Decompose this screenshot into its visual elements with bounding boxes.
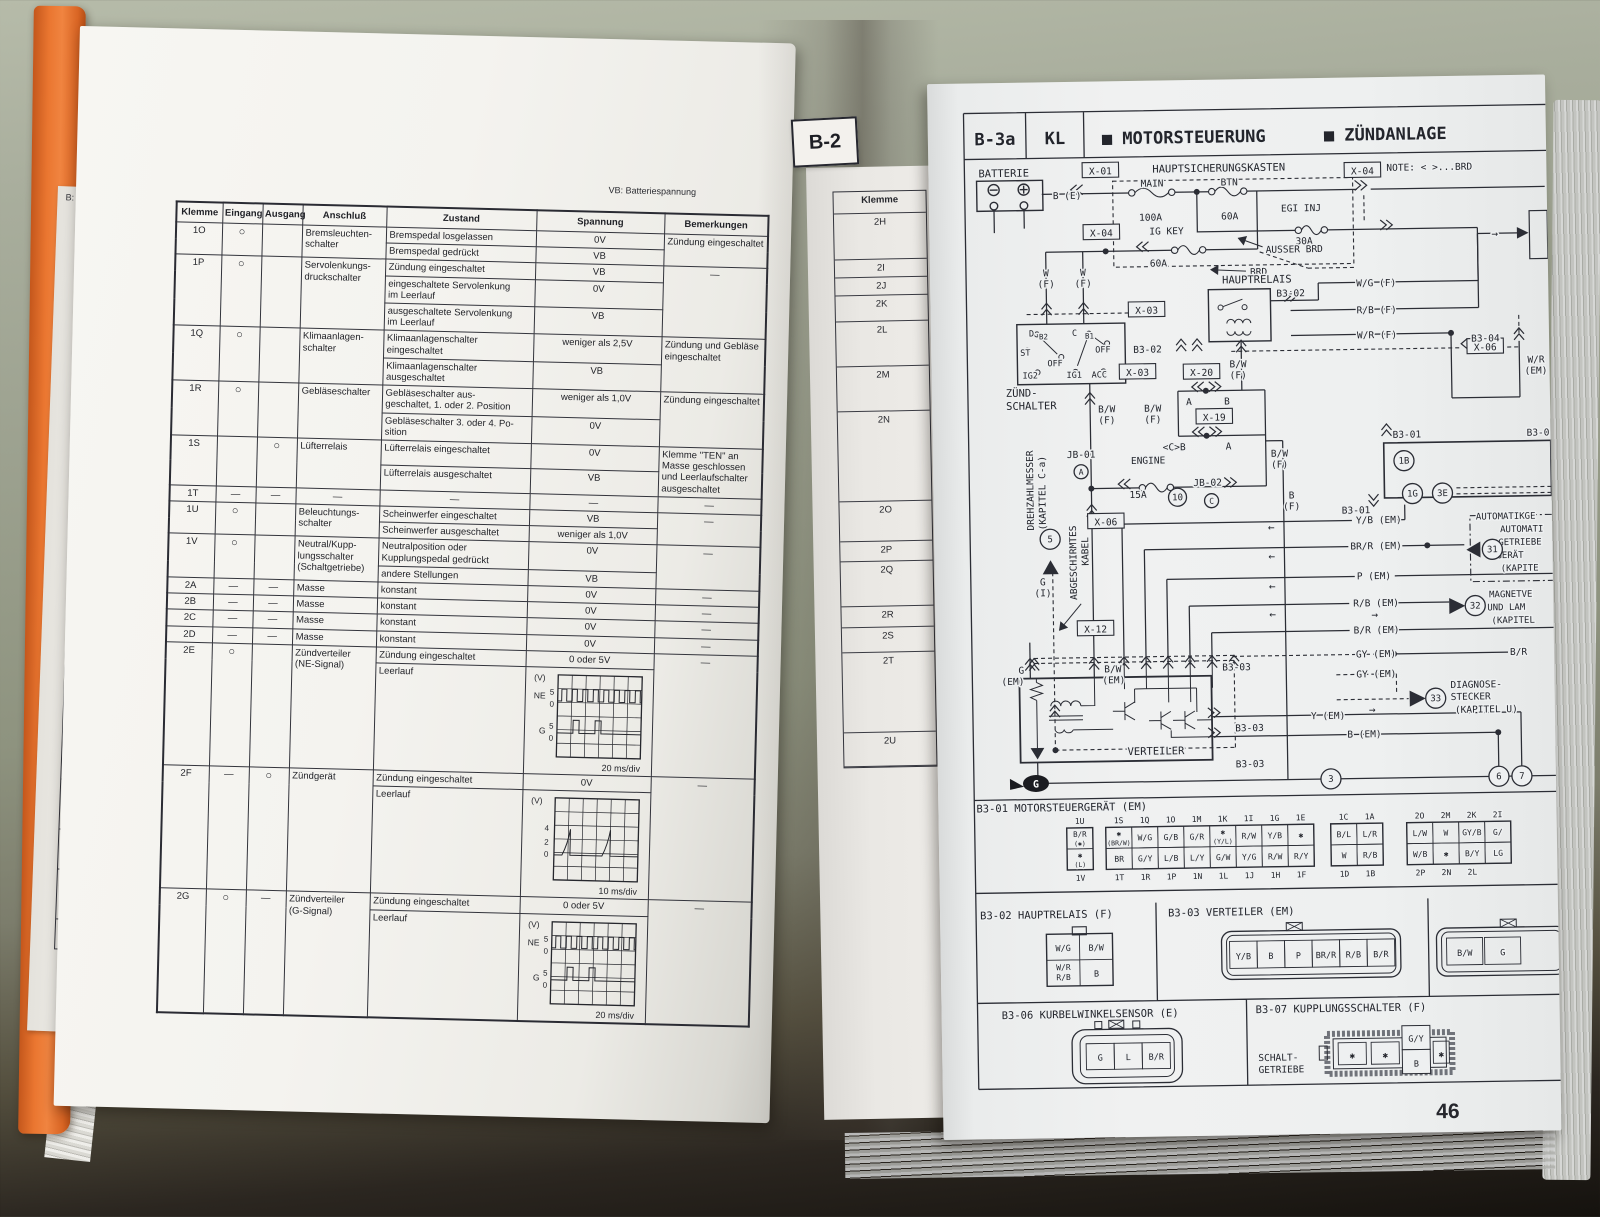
table-cell: VB [530,469,659,497]
table-cell: — [648,777,755,903]
battery-voltage-note: VB: Batteriespannung [534,183,696,197]
graph-label: 20 ms/div [601,763,640,774]
table-cell: Beleuchtungs- schalter [295,504,380,538]
table-cell: ○ [209,643,252,767]
section-tab-b2: B-2 [791,116,859,167]
table-cell: Leerlauf [370,786,523,897]
table-cell: Zündung eingeschaltet [659,392,764,449]
table-cell: (V)42010 ms/div [520,790,651,900]
table-cell: Klimaanlagen- schalter [298,328,383,385]
table-cell: Gebläseschalter aus- geschaltet, 1. oder… [382,385,533,416]
graph-label: 0 [549,700,554,709]
table-cell [255,503,296,536]
right-paper [927,74,1562,1140]
page-number: 46 [1436,1100,1460,1124]
table-cell: Zündverteiler (NE-Signal) [289,645,376,770]
table-cell: Klemme "TEN" an Masse geschlossen und Le… [658,447,763,499]
table-cell: ○ [246,767,289,891]
table-cell: 1S [170,435,217,486]
column-header: Anschluß [302,204,386,227]
table-cell: 0V [530,444,659,472]
table-cell: Bremsleuchten- schalter [301,225,386,259]
table-cell: 0V [534,279,663,310]
graph-label: 0 [542,980,547,989]
table-cell: Lüfterrelais [296,438,381,490]
graph-label: 5 [548,722,553,731]
graph-label: 5 [542,968,547,977]
table-cell: Lüfterrelais eingeschaltet [380,440,531,469]
table-cell: ○ [220,255,262,327]
graph-label: 4 [544,824,549,833]
table-cell: 1O [175,222,222,256]
table-cell: — [206,766,249,890]
graph-label: (V) [534,672,546,682]
table-cell: Leerlauf [373,663,526,774]
table-cell: — [253,595,293,612]
table-cell: 2A [167,577,213,594]
table-cell: 1R [171,380,218,436]
table-cell: 2C [166,609,212,626]
photo-scene: B: Batteriespannung Bemerkungenersorgung… [0,0,1600,1217]
table-cell [254,535,295,580]
table-cell [258,327,299,383]
table-cell: — [243,890,286,1015]
table-cell: 1T [169,485,215,502]
table-cell: — [656,513,761,548]
table-cell: ausgeschaltete Servolenkung im Leerlauf [384,303,535,334]
table-cell: — [651,654,758,780]
table-cell: — [212,627,252,644]
table-cell: — [213,578,253,595]
table-cell: Gebläseschalter [297,383,382,440]
table-cell: — [255,487,295,504]
table-cell: 1P [174,254,222,326]
table-cell: VB [534,307,663,338]
table-cell: — [212,610,252,627]
table-cell: 2B [167,593,213,610]
column-header: Klemme [176,201,222,223]
table-cell: — [662,266,768,340]
graph-label: NE [533,690,545,700]
terminal-spec-table: KlemmeEingangAusgangAnschlußZustandSpann… [156,200,770,1027]
table-cell: — [253,579,293,596]
table-cell: ○ [256,437,297,488]
graph-label: 0 [543,850,548,859]
table-cell: Masse [293,596,377,614]
graph-label: 0 [543,946,548,955]
graph-grid [556,675,642,759]
table-cell: Gebläseschalter 3. oder 4. Po- sition [381,413,532,444]
table-cell: Zündung eingeschaltet [663,234,768,269]
table-cell: VB [532,361,661,392]
table-cell: 2D [166,625,212,642]
table-cell: ○ [221,223,262,256]
column-header: Eingang [222,203,262,224]
table-cell: Servolenkungs- druckschalter [300,257,386,330]
table-cell: — [252,611,292,628]
table-cell: — [655,545,760,591]
table-cell: Zündverteiler (G-Signal) [283,891,370,1017]
column-header: Bemerkungen [664,213,768,236]
column-header: Ausgang [262,204,302,225]
table-cell: (V)NE50G5020 ms/div [517,913,648,1024]
table-cell: Zündung und Gebläse eingeschaltet [660,337,765,394]
graph-wrap: (V)NE50G5020 ms/div [520,916,643,1021]
table-cell: Klimaanlagenschalter eingeschaltet [383,330,534,361]
graph-label: 10 ms/div [598,886,637,897]
graph-label: (V) [528,919,540,929]
table-cell: weniger als 2,5V [533,334,662,365]
graph-label: 20 ms/div [595,1009,634,1020]
table-cell: 2G [157,888,206,1013]
table-cell: 0V [531,416,660,447]
graph-label: (V) [531,796,543,806]
table-cell: eingeschaltete Servolenkung im Leerlauf [384,276,535,307]
table-cell [257,382,298,438]
table-cell: 2E [163,642,212,766]
table-cell [260,256,302,328]
table-cell: Klimaanlagenschalter ausgeschaltet [382,358,533,389]
graph-label: 2 [544,838,549,847]
oscilloscope-graph: (V)42010 ms/div [526,792,646,897]
table-cell: ○ [203,889,246,1014]
table-cell: Masse [292,629,376,647]
table-cell [216,436,257,487]
graph-label: G [538,726,545,736]
graph-label: G [532,972,539,982]
graph-grid [550,921,636,1005]
table-cell: ○ [217,381,258,437]
table-cell: 1V [168,533,215,578]
graph-wrap: (V)42010 ms/div [523,792,646,897]
graph-label: 5 [543,934,548,943]
table-cell: 0V [528,542,657,573]
table-cell: — [213,594,253,611]
table-cell: 1Q [172,325,219,381]
table-cell: 1U [169,501,216,535]
table-cell: Neutral/Kupp- lungsschalter (Schaltgetri… [294,536,379,582]
table-cell: Zündgerät [286,768,373,893]
table-cell: 2F [160,765,209,889]
oscilloscope-graph: (V)NE50G5020 ms/div [523,916,643,1021]
table-cell [261,224,302,257]
table-cell: — [645,900,752,1026]
graph-grid [553,798,639,882]
table-cell: ○ [218,326,259,382]
oscilloscope-graph: (V)NE50G5020 ms/div [529,669,649,774]
table-cell: Leerlauf [367,909,520,1020]
table-cell: Neutralposition oder Kupplungspedal gedr… [378,538,529,569]
table-cell [249,644,292,768]
table-cell: (V)NE50G5020 ms/div [523,667,654,777]
table-cell: — [252,628,292,645]
left-page: VB: Batteriespannung KlemmeEingangAusgan… [54,26,796,1123]
graph-wrap: (V)NE50G5020 ms/div [526,669,649,774]
table-cell: ○ [215,502,256,535]
right-page: GB-3aKL■ MOTORSTEUERUNG■ ZÜNDANLAGEX-01X… [875,74,1562,1140]
table-cell: Lüfterrelais ausgeschaltet [380,465,531,494]
graph-label: 0 [548,734,553,743]
table-cell: ○ [214,534,255,579]
table-cell: Masse [292,612,376,630]
graph-label: NE [527,937,539,947]
table-cell: — [215,486,255,503]
graph-label: 5 [549,688,554,697]
table-cell: weniger als 1,0V [532,389,661,420]
